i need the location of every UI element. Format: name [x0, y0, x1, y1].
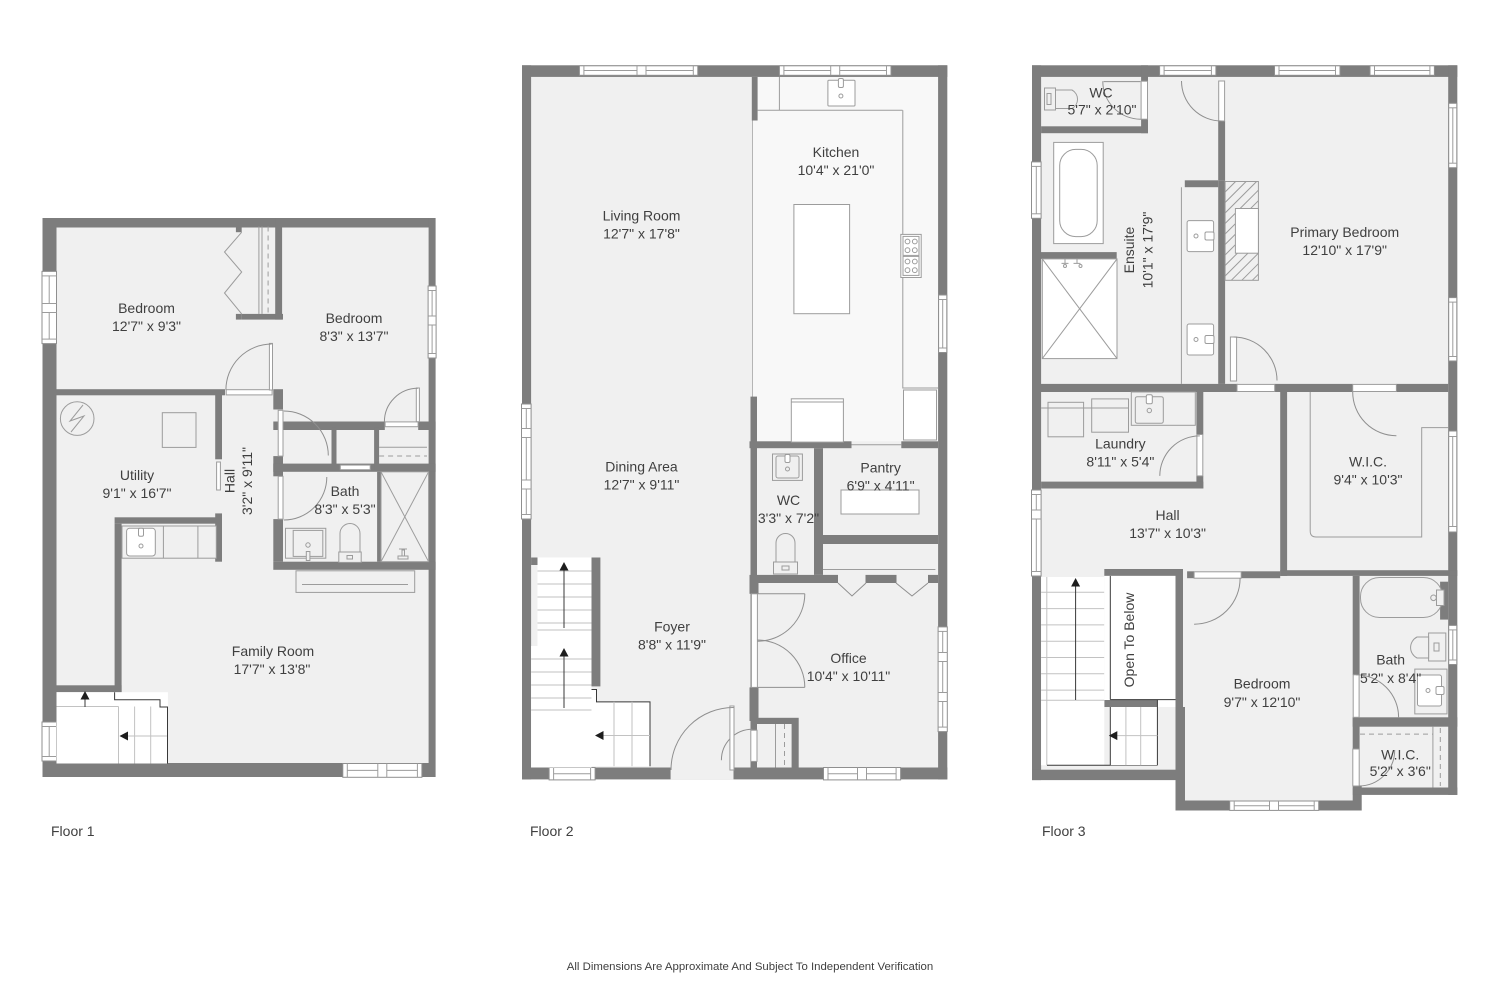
svg-text:Floor 1: Floor 1	[51, 823, 95, 839]
svg-text:Bedroom: Bedroom	[118, 300, 175, 316]
svg-text:8'3" x 5'3": 8'3" x 5'3"	[314, 501, 375, 517]
svg-text:Bath: Bath	[331, 483, 360, 499]
svg-text:W.I.C.: W.I.C.	[1381, 747, 1419, 763]
svg-text:3'2" x 9'11": 3'2" x 9'11"	[239, 447, 255, 515]
svg-text:8'11" x 5'4": 8'11" x 5'4"	[1086, 454, 1154, 470]
svg-text:Utility: Utility	[120, 467, 154, 483]
svg-text:12'10" x 17'9": 12'10" x 17'9"	[1302, 242, 1387, 258]
svg-text:Office: Office	[830, 650, 867, 666]
svg-text:9'4" x 10'3": 9'4" x 10'3"	[1334, 472, 1403, 488]
svg-text:Floor 2: Floor 2	[530, 823, 574, 839]
svg-text:Ensuite: Ensuite	[1121, 226, 1137, 273]
svg-text:8'3" x 13'7": 8'3" x 13'7"	[320, 328, 389, 344]
svg-text:Floor 3: Floor 3	[1042, 823, 1086, 839]
svg-text:Family Room: Family Room	[232, 643, 314, 659]
svg-text:Living Room: Living Room	[603, 208, 681, 224]
svg-text:5'2" x 8'4": 5'2" x 8'4"	[1360, 670, 1421, 686]
svg-text:9'1" x 16'7": 9'1" x 16'7"	[103, 485, 172, 501]
svg-text:8'8" x 11'9": 8'8" x 11'9"	[638, 637, 706, 653]
svg-text:Bedroom: Bedroom	[1234, 676, 1291, 692]
svg-text:12'7" x 9'3": 12'7" x 9'3"	[112, 318, 181, 334]
svg-text:3'3" x 7'2": 3'3" x 7'2"	[758, 510, 819, 526]
svg-text:17'7" x 13'8": 17'7" x 13'8"	[234, 661, 311, 677]
svg-text:12'7" x 9'11": 12'7" x 9'11"	[604, 477, 680, 493]
svg-text:Primary Bedroom: Primary Bedroom	[1290, 224, 1399, 240]
svg-text:9'7" x 12'10": 9'7" x 12'10"	[1224, 694, 1301, 710]
svg-text:Hall: Hall	[1156, 507, 1180, 523]
svg-text:W.I.C.: W.I.C.	[1349, 454, 1387, 470]
svg-text:Hall: Hall	[222, 469, 238, 493]
svg-text:12'7" x 17'8": 12'7" x 17'8"	[603, 226, 680, 242]
svg-text:Foyer: Foyer	[654, 619, 690, 635]
svg-text:Bath: Bath	[1376, 652, 1405, 668]
svg-text:10'1" x 17'9": 10'1" x 17'9"	[1140, 212, 1156, 289]
svg-text:WC: WC	[777, 492, 800, 508]
svg-text:WC: WC	[1089, 85, 1112, 101]
svg-text:10'4" x 21'0": 10'4" x 21'0"	[798, 162, 875, 178]
svg-text:Open To Below: Open To Below	[1121, 592, 1137, 688]
svg-text:5'7" x 2'10": 5'7" x 2'10"	[1068, 102, 1137, 118]
svg-text:10'4" x 10'11": 10'4" x 10'11"	[807, 668, 891, 684]
svg-text:Laundry: Laundry	[1095, 436, 1146, 452]
svg-text:5'2" x 3'6": 5'2" x 3'6"	[1370, 763, 1431, 779]
svg-text:Bedroom: Bedroom	[326, 310, 383, 326]
svg-text:6'9" x 4'11": 6'9" x 4'11"	[847, 478, 915, 494]
svg-text:13'7" x 10'3": 13'7" x 10'3"	[1129, 525, 1206, 541]
svg-text:All Dimensions Are Approximate: All Dimensions Are Approximate And Subje…	[567, 961, 933, 973]
svg-text:Dining Area: Dining Area	[605, 459, 678, 475]
svg-text:Kitchen: Kitchen	[813, 144, 860, 160]
svg-text:Pantry: Pantry	[860, 460, 900, 476]
